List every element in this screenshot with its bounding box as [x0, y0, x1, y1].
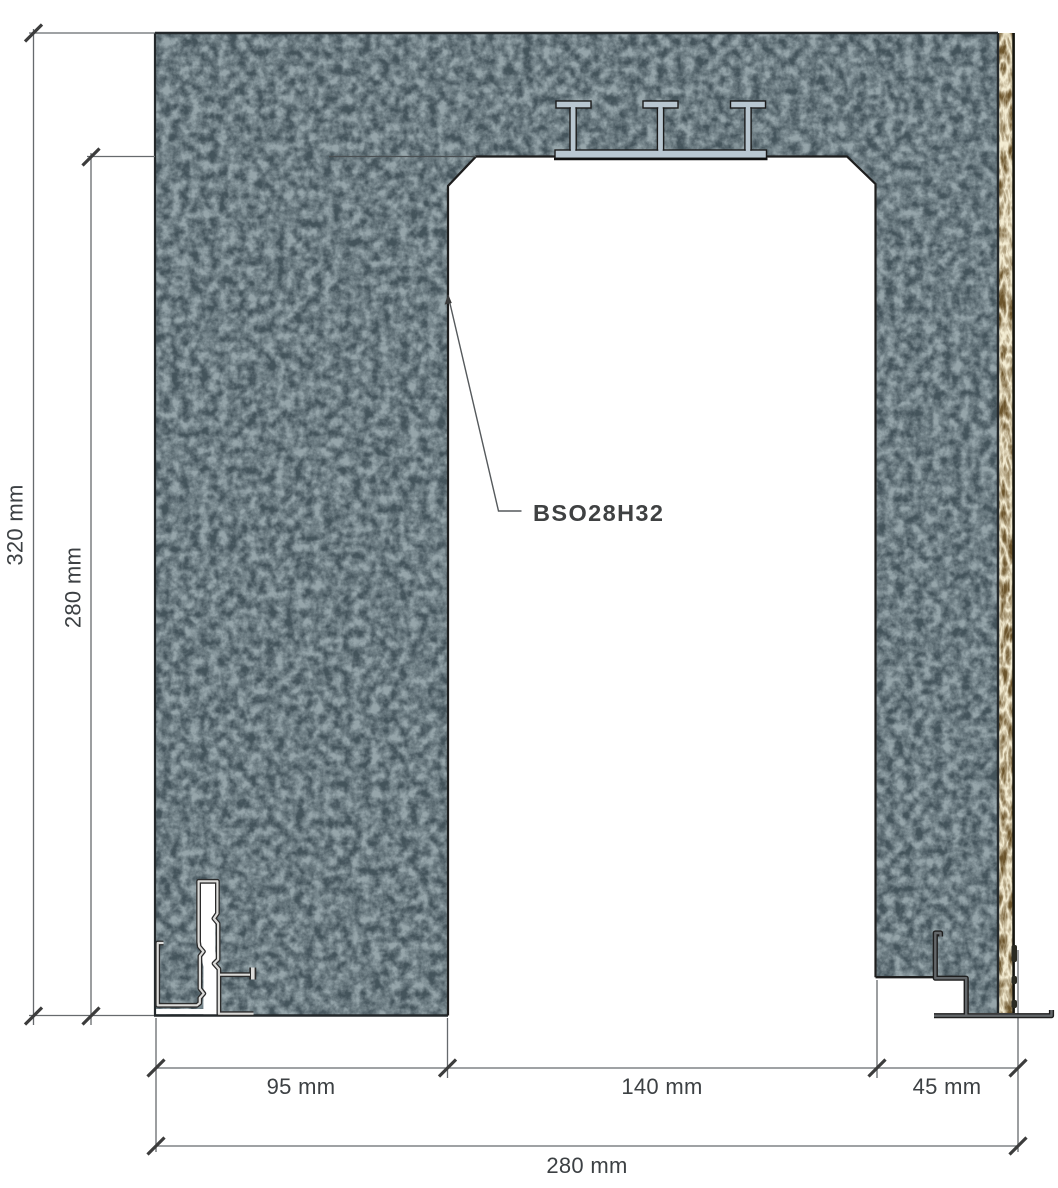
svg-text:320 mm: 320 mm [3, 484, 28, 565]
svg-text:45 mm: 45 mm [913, 1074, 982, 1099]
svg-text:140 mm: 140 mm [621, 1074, 702, 1099]
svg-text:95 mm: 95 mm [267, 1074, 336, 1099]
svg-text:280 mm: 280 mm [546, 1153, 627, 1178]
svg-text:280 mm: 280 mm [61, 547, 86, 628]
svg-text:BSO28H32: BSO28H32 [533, 500, 664, 526]
